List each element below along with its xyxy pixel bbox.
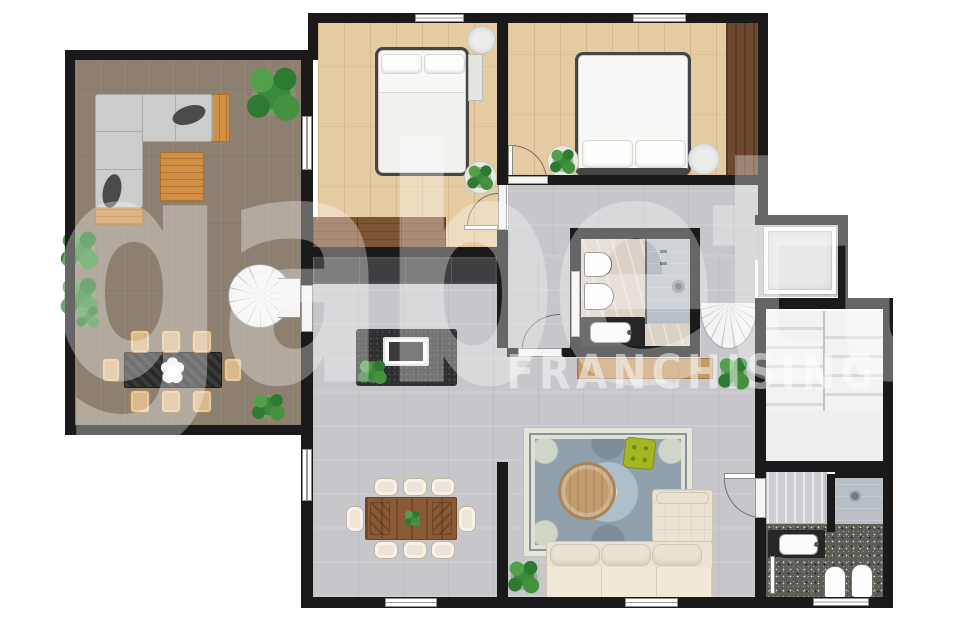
vestibule-wardrobe	[766, 471, 826, 524]
table-panel	[432, 502, 452, 535]
toilet	[584, 252, 612, 277]
dining-chair	[102, 358, 120, 382]
dining-chair	[161, 330, 181, 353]
bed-1-pillow	[424, 54, 465, 74]
kitchen-chair	[374, 541, 398, 559]
sliding-door-track	[571, 271, 580, 337]
round-ottoman	[688, 143, 720, 175]
bed-2-footboard	[578, 168, 688, 174]
wall	[838, 215, 848, 305]
shower-glass-divider	[645, 239, 647, 324]
kitchen-chair	[431, 478, 455, 496]
palm-plant	[243, 60, 305, 128]
bush-plant	[74, 304, 102, 330]
green-ottoman	[622, 436, 656, 470]
door-threshold-bedroom-1	[498, 184, 507, 230]
door-threshold-bedroom-2	[508, 176, 548, 184]
bidet	[584, 283, 614, 310]
round-stool	[467, 26, 496, 54]
window	[302, 449, 312, 501]
faucet	[814, 542, 819, 547]
stair-divider	[823, 311, 825, 421]
table-flower-centerpiece	[159, 357, 186, 384]
door-threshold-vestibule	[755, 478, 766, 518]
dining-chair	[224, 358, 242, 382]
sofa-back-pillow	[601, 544, 651, 566]
living-plant	[506, 556, 542, 598]
wall	[65, 50, 75, 435]
sofa-side-table-bottom	[95, 206, 143, 225]
bed-2-pillow	[582, 140, 633, 168]
dining-chair	[130, 330, 150, 353]
wall	[570, 346, 700, 357]
hall-plant	[716, 353, 752, 394]
sofa-bolster	[656, 492, 709, 504]
floor-plan-canvas: gabetti FRANCHISING	[0, 0, 958, 618]
shower-head	[672, 280, 685, 293]
built-in-closet	[313, 257, 497, 284]
shower-head-2	[849, 490, 861, 502]
window	[302, 116, 312, 170]
shower-control	[660, 262, 667, 265]
wall	[65, 50, 311, 60]
wall	[308, 13, 318, 60]
bed-1-duvet	[379, 92, 465, 172]
window	[385, 598, 437, 607]
door-leaf-bathroom-2	[770, 556, 775, 594]
stair-treads-left	[766, 311, 824, 411]
passage-threshold	[301, 285, 313, 332]
wall	[755, 298, 893, 309]
bed-2-pillow	[635, 140, 686, 168]
window	[633, 14, 686, 22]
faucet	[627, 330, 632, 335]
wall	[755, 215, 848, 225]
sofa-back-pillow	[652, 544, 702, 566]
table-centerpiece-plant	[403, 508, 422, 529]
potted-plant	[464, 161, 497, 194]
stair-landing	[766, 411, 883, 464]
sofa-side-table-right	[211, 94, 230, 142]
wall	[497, 462, 508, 608]
potted-plant	[547, 145, 579, 178]
wall	[827, 474, 835, 532]
bed-1-pillow	[381, 54, 422, 74]
table-panel	[370, 502, 390, 535]
wall	[758, 185, 768, 218]
window	[625, 598, 678, 607]
sofa-back-pillow	[550, 544, 600, 566]
wall	[308, 247, 508, 257]
round-coffee-table	[558, 462, 616, 520]
console-bench	[577, 358, 713, 379]
bedroom-1-wardrobe	[313, 217, 446, 248]
kitchen-chair	[403, 478, 427, 496]
stair-treads-right	[824, 311, 883, 421]
kitchen-chair	[458, 506, 476, 532]
kitchen-chair	[403, 541, 427, 559]
bush-plant	[248, 392, 290, 422]
island-plant	[355, 358, 391, 386]
kitchen-chair	[374, 478, 398, 496]
wall	[690, 228, 700, 357]
wall	[562, 348, 570, 357]
door-threshold-hall	[518, 348, 562, 357]
bidet-2	[851, 564, 873, 598]
bed-1-dresser	[468, 54, 483, 101]
bedroom-2-wardrobe	[726, 23, 758, 175]
wall	[308, 13, 508, 23]
wall	[507, 348, 518, 357]
dining-chair	[192, 390, 212, 413]
wall	[835, 470, 883, 478]
wall	[755, 298, 766, 608]
wall	[65, 425, 311, 435]
bathroom-sink	[590, 322, 631, 343]
bathroom-2-sink	[779, 534, 818, 555]
dining-chair	[130, 390, 150, 413]
window	[813, 598, 869, 606]
sofa-seat	[547, 567, 712, 597]
wall	[883, 298, 893, 470]
spiral-staircase-landing	[278, 278, 300, 318]
cooktop-surface	[389, 342, 423, 361]
wall	[883, 460, 893, 608]
window	[415, 14, 464, 22]
coffee-table	[160, 152, 204, 202]
wall	[758, 13, 768, 187]
toilet-2	[824, 566, 846, 599]
kitchen-chair	[346, 506, 364, 532]
wall	[301, 597, 768, 608]
kitchen-chair	[431, 541, 455, 559]
wall	[497, 257, 508, 348]
wall	[570, 228, 700, 239]
dining-chair	[192, 330, 212, 353]
wall	[497, 13, 508, 184]
door-leaf-bedroom-1	[464, 225, 498, 230]
shower-control	[660, 250, 667, 253]
elevator-closet-unit	[764, 227, 836, 294]
dining-chair	[161, 390, 181, 413]
